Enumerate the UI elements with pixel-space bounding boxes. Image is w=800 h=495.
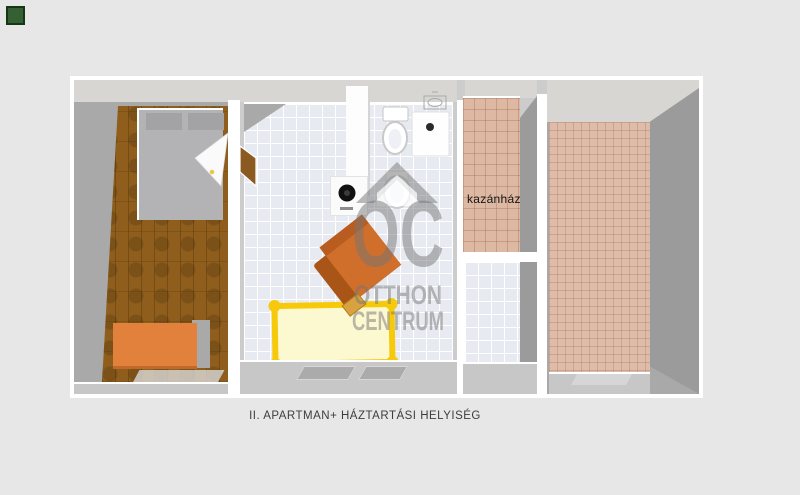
right-room-right-wall [650,88,699,394]
wall-bedroom-center [228,100,240,394]
corner-marker [6,6,25,25]
boiler-bottom-wall [463,362,537,394]
bedroom-dresser [113,323,197,369]
bedroom-top-wall [74,80,240,102]
caption: II. APARTMAN+ HÁZTARTÁSI HELYISÉG [240,410,490,422]
lower-room-right-wall [520,262,537,362]
boiler-right-wall [520,96,537,252]
bed-pillow [146,113,182,130]
wall-boiler-right [537,94,547,394]
floorplan-screenshot: kazánház [0,0,800,495]
washing-machine [330,176,368,216]
right-room-floor-glare [571,374,632,385]
floorplan [70,76,703,398]
center-bottom-window [358,366,408,380]
yellow-bed [271,301,395,367]
bed-post [268,300,280,312]
bedroom-bottom-wall [74,382,240,394]
boiler-room-label: kazánház [467,192,521,206]
center-bottom-window [296,366,356,380]
bed-pillow [188,113,224,130]
lower-room-floor [465,262,520,362]
boiler-room-floor [463,96,520,252]
right-room-floor [549,122,650,372]
bedroom-bed [137,108,223,220]
boiler-lower-wall [463,252,537,262]
